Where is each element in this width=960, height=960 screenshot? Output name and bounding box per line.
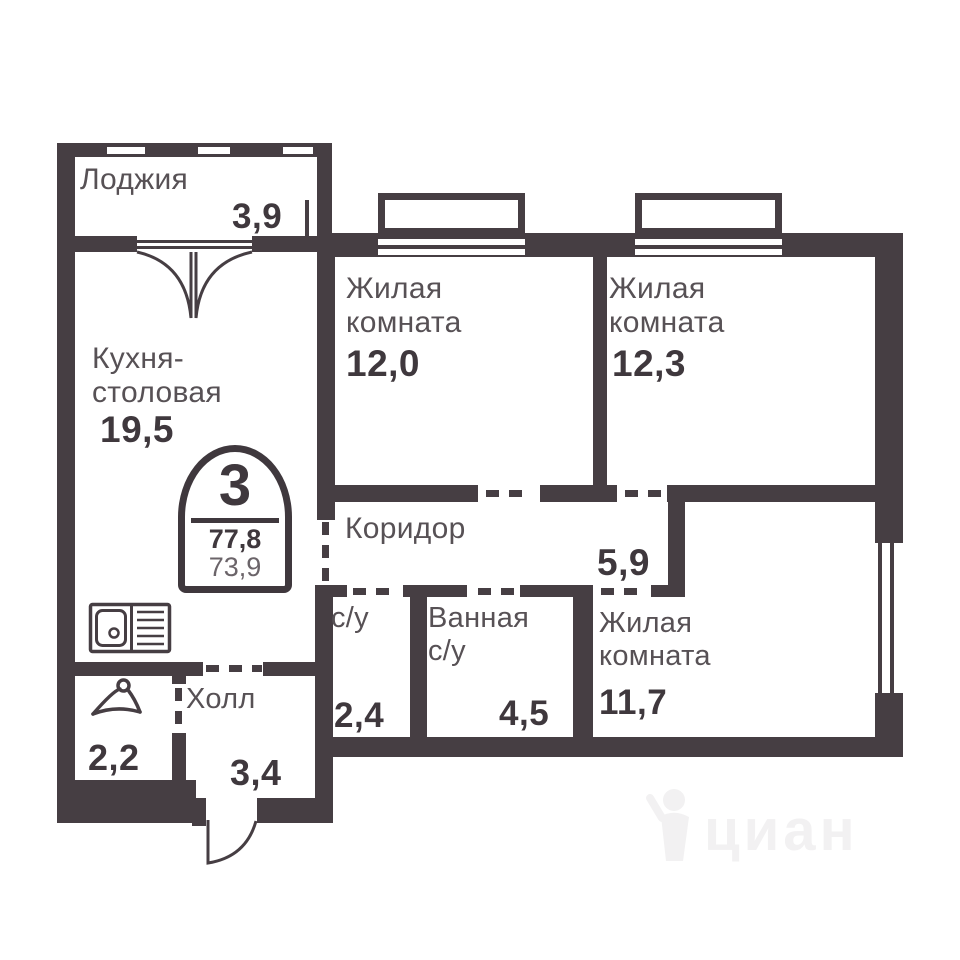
room-area-wc: 2,4 [334, 696, 384, 736]
cian-watermark-text: циан [704, 797, 859, 864]
stamp-living-area: 73,9 [185, 553, 285, 581]
room-area-living1: 12,0 [346, 343, 420, 385]
stamp-rooms-count: 3 [185, 457, 285, 515]
hanger-icon [93, 680, 140, 714]
room-label-kitchen: Кухня-столовая [92, 342, 242, 410]
stamp-total-area: 77,8 [185, 525, 285, 553]
entrance-door-arc [208, 820, 256, 863]
room-area-kitchen: 19,5 [100, 409, 174, 451]
room-label-hall: Холл [186, 683, 256, 716]
room-label-bathroom: Ванная с/у [428, 602, 546, 668]
room-label-living1: Жилая комната [346, 272, 488, 340]
cian-watermark-person-icon [650, 789, 689, 861]
floor-plan: Лоджия 3,9 Кухня-столовая 19,5 Жилая ком… [0, 0, 960, 960]
room-area-corridor: 5,9 [597, 542, 650, 584]
balcony-door-leaf-left [137, 252, 191, 318]
room-area-living2: 12,3 [612, 343, 686, 385]
room-label-living3: Жилая комната [599, 607, 741, 673]
stamp-divider [191, 518, 279, 523]
room-label-wc: с/у [331, 602, 369, 635]
room-label-corridor: Коридор [345, 512, 466, 546]
room-area-loggia: 3,9 [232, 197, 282, 237]
room-label-loggia: Лоджия [80, 163, 188, 197]
room-area-living3: 11,7 [599, 683, 667, 723]
room-area-hall: 3,4 [230, 752, 282, 794]
apartment-stamp: 3 77,8 73,9 [178, 445, 292, 593]
room-area-wardrobe: 2,2 [88, 737, 140, 779]
balcony-door-leaf-right [196, 252, 252, 318]
room-area-bathroom: 4,5 [499, 694, 549, 734]
sink-icon [91, 605, 170, 652]
room-label-living2: Жилая комната [609, 272, 751, 340]
